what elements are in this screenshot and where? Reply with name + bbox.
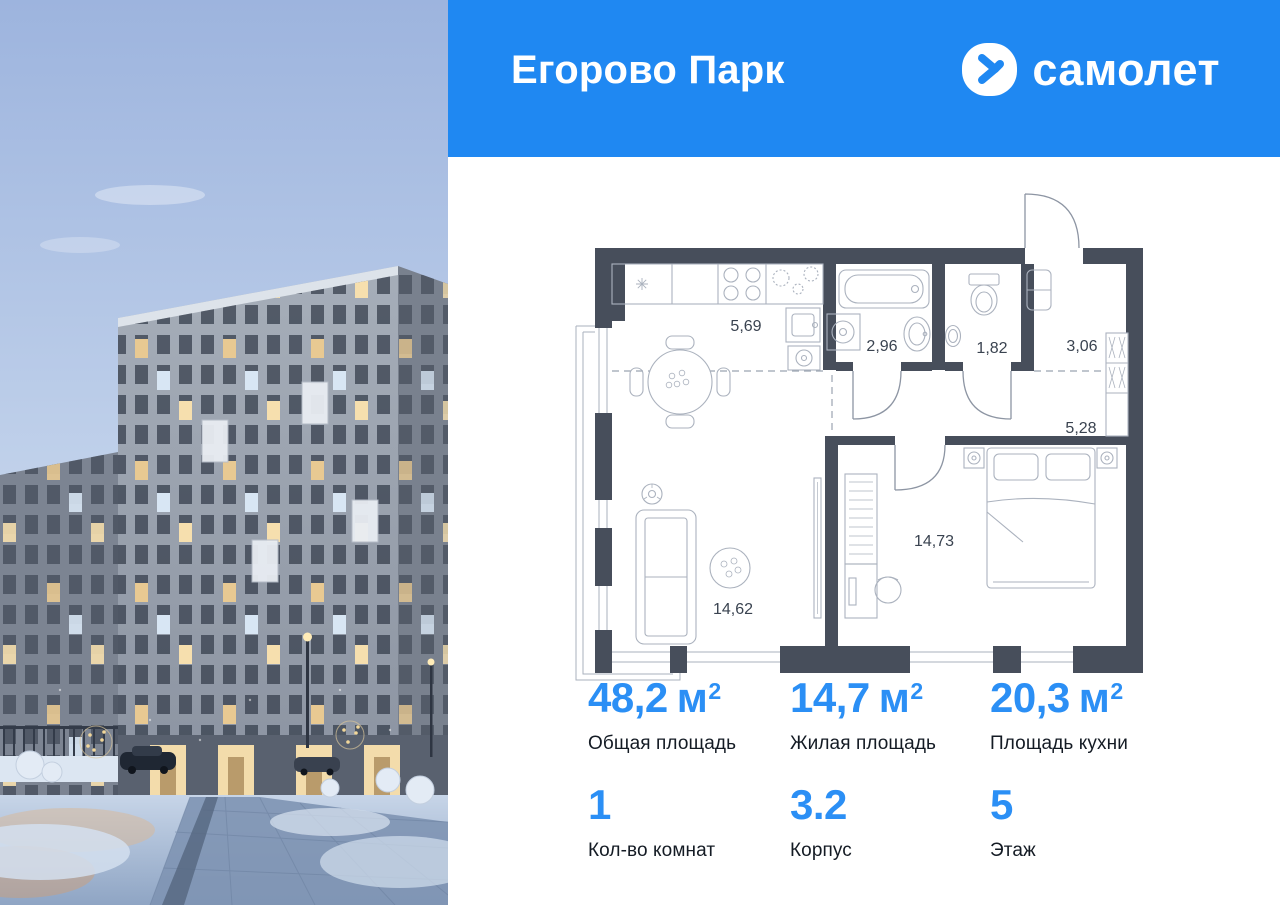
project-photo-art [0, 0, 448, 905]
room-label-corridor: 5,28 [1065, 420, 1096, 437]
bedroom-door [895, 445, 945, 490]
header: Егорово Парк самолет [448, 0, 1280, 157]
living-room-fixtures [636, 478, 821, 644]
stat-living-area-label: Жилая площадь [790, 733, 990, 755]
stat-kitchen-area-label: Площадь кухни [990, 733, 1248, 755]
stat-rooms-label: Кол-во комнат [588, 840, 790, 862]
stat-building: 3.2 Корпус [790, 783, 990, 862]
fridge-icon [636, 278, 648, 290]
stat-living-area: 14,7м2 Жилая площадь [790, 676, 990, 755]
room-label-bathroom: 2,96 [866, 338, 897, 355]
kitchen-sink [786, 308, 820, 342]
area-stats-row: 48,2м2 Общая площадь 14,7м2 Жилая площад… [588, 676, 1248, 755]
stat-rooms: 1 Кол-во комнат [588, 783, 790, 862]
brand-name: самолет [1032, 44, 1220, 96]
ground [0, 795, 448, 905]
dishwasher [788, 346, 820, 370]
stat-total-area-label: Общая площадь [588, 733, 790, 755]
room-label-living: 14,62 [713, 601, 753, 618]
dining-table [630, 336, 730, 428]
room-label-hallway: 3,06 [1066, 338, 1097, 355]
kitchen-fixtures [612, 264, 823, 370]
wc-fixtures [946, 274, 1000, 347]
floor-plan: 5,69 2,96 1,82 3,06 5,28 14,73 14,62 [568, 186, 1143, 698]
stat-total-area-value: 48,2м2 [588, 676, 790, 720]
wc-door [963, 371, 1011, 419]
project-photo [0, 0, 448, 905]
apartment-stats: 48,2м2 Общая площадь 14,7м2 Жилая площад… [588, 676, 1248, 862]
room-label-bedroom: 14,73 [914, 533, 954, 550]
stat-floor-value: 5 [990, 783, 1248, 827]
stat-floor: 5 Этаж [990, 783, 1248, 862]
stove-icon [724, 268, 760, 300]
bedroom-fixtures [845, 448, 1117, 618]
stat-kitchen-area-value: 20,3м2 [990, 676, 1248, 720]
stat-building-label: Корпус [790, 840, 990, 862]
stat-building-value: 3.2 [790, 783, 990, 827]
entrance-door [1025, 194, 1079, 248]
info-stats-row: 1 Кол-во комнат 3.2 Корпус 5 Этаж [588, 783, 1248, 862]
listing-card: Егорово Парк самолет [0, 0, 1280, 905]
stat-floor-label: Этаж [990, 840, 1248, 862]
stat-kitchen-area: 20,3м2 Площадь кухни [990, 676, 1248, 755]
brand-logo: самолет [962, 43, 1220, 96]
stat-living-area-value: 14,7м2 [790, 676, 990, 720]
room-label-wc: 1,82 [976, 340, 1007, 357]
main-building [118, 266, 398, 812]
project-title: Егорово Парк [511, 48, 785, 93]
stat-rooms-value: 1 [588, 783, 790, 827]
plan-fixtures [612, 264, 1128, 644]
counter-plants [773, 267, 818, 294]
bathroom-door [853, 371, 901, 419]
room-label-kitchen: 5,69 [730, 318, 761, 335]
samolet-logo-icon [962, 43, 1017, 96]
stat-total-area: 48,2м2 Общая площадь [588, 676, 790, 755]
listing-panel: Егорово Парк самолет [448, 0, 1280, 905]
